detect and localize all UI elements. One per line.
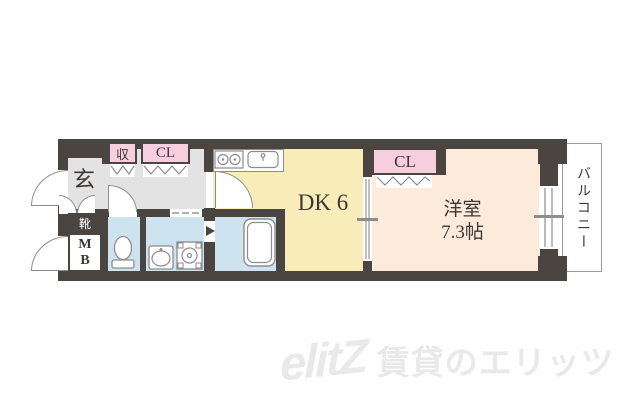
wall-dk-west-bottom bbox=[363, 261, 372, 281]
wall-bottom bbox=[58, 271, 567, 281]
sink-icon bbox=[248, 152, 278, 168]
hall-closet-label: CL bbox=[156, 145, 175, 162]
balcony-label: バルコニー bbox=[568, 150, 596, 266]
bifold-door-icon bbox=[143, 164, 188, 177]
bifold-door-icon bbox=[376, 175, 432, 188]
wall-mid-2 bbox=[204, 208, 215, 221]
dk-label: DK 6 bbox=[278, 189, 368, 217]
wall-cl-west-right bbox=[438, 148, 446, 175]
stove-icon bbox=[215, 151, 243, 168]
toilet-icon bbox=[110, 235, 136, 269]
washbasin-icon bbox=[148, 245, 174, 270]
western-closet: CL bbox=[372, 148, 438, 175]
washroom-sliding-door-icon bbox=[170, 209, 202, 217]
bifold-door-icon bbox=[110, 164, 135, 177]
wall-bath-dk bbox=[276, 217, 285, 273]
washing-machine-icon bbox=[176, 241, 203, 270]
western-room-label: 洋室 7.3帖 bbox=[410, 197, 515, 245]
storage-closet: 収 bbox=[108, 142, 137, 164]
watermark: elitZ 賃貸のエリッツ bbox=[280, 332, 615, 387]
wall-toilet-washroom bbox=[140, 217, 146, 273]
wall-mb-toilet bbox=[102, 217, 108, 273]
western-closet-label: CL bbox=[394, 152, 416, 172]
sliding-door-tick bbox=[357, 218, 378, 221]
hall-closet: CL bbox=[141, 142, 190, 164]
bathroom-folding-door-icon bbox=[206, 226, 215, 236]
floor-plan: 収 CL CL bbox=[0, 0, 640, 416]
watermark-logo: elitZ bbox=[280, 327, 366, 391]
kitchen-counter bbox=[213, 149, 284, 172]
wall-mid-3 bbox=[204, 242, 215, 273]
stove-and-sink bbox=[214, 150, 282, 170]
wall-pillar-top-right bbox=[538, 139, 567, 164]
wall-dk-west-top bbox=[363, 139, 372, 177]
genkan-label: 玄 bbox=[66, 163, 102, 193]
mb-door-swing-icon bbox=[31, 236, 68, 271]
meter-box-label: M B bbox=[68, 233, 102, 272]
bathtub-icon bbox=[243, 218, 276, 267]
shoe-cabinet-label: 靴 bbox=[68, 213, 102, 233]
wall-pillar-bottom-right bbox=[538, 256, 567, 281]
balcony-window-tick bbox=[534, 215, 564, 218]
watermark-text: 賃貸のエリッツ bbox=[377, 336, 615, 384]
storage-label: 収 bbox=[116, 144, 129, 163]
